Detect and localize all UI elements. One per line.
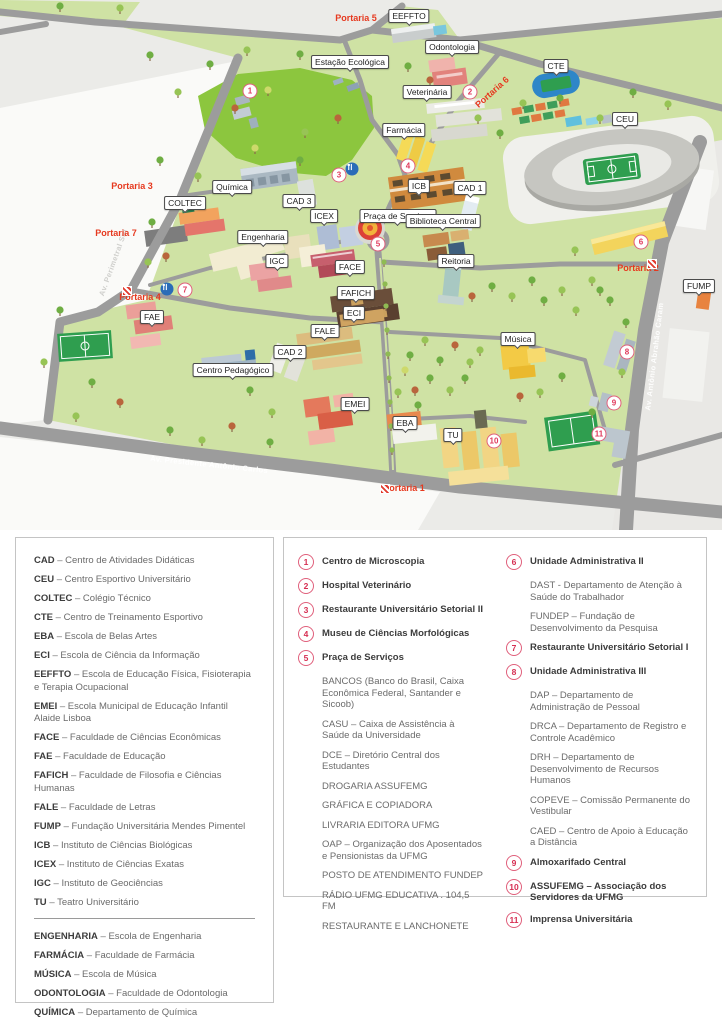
map-label-veterinaria: Veterinária bbox=[403, 85, 452, 99]
map-label-igc: IGC bbox=[265, 254, 288, 268]
legend-sub-item: RESTAURANTE E LANCHONETE bbox=[322, 921, 484, 933]
legend-sub-item: CASU – Caixa de Assistência à Saúde da U… bbox=[322, 719, 484, 742]
legend-sub-item: LIVRARIA EDITORA UFMG bbox=[322, 820, 484, 832]
portaria-label: Portaria 7 bbox=[95, 228, 137, 238]
map-label-face: FACE bbox=[335, 260, 365, 274]
legend-abbr-item: IGC – Instituto de Geociências bbox=[34, 878, 255, 891]
map-label-eba: EBA bbox=[392, 416, 417, 430]
map-label-centro-pedagogico: Centro Pedagógico bbox=[193, 363, 274, 377]
map-marker-2: 2 bbox=[463, 85, 478, 100]
map-label-farmacia: Farmácia bbox=[382, 123, 425, 137]
map-label-fale: FALE bbox=[311, 324, 340, 338]
map-marker-1: 1 bbox=[243, 84, 258, 99]
map-marker-8: 8 bbox=[620, 345, 635, 360]
legend-divider bbox=[34, 918, 255, 919]
legend-sub-item: BANCOS (Banco do Brasil, Caixa Econômica… bbox=[322, 676, 484, 711]
legend-sub-item: DRH – Departamento de Desenvolvimento de… bbox=[530, 752, 692, 787]
map-label-odontologia: Odontologia bbox=[425, 40, 479, 54]
legend-num-item: 6Unidade Administrativa II bbox=[506, 556, 692, 570]
legend-abbr-item: ENGENHARIA – Escola de Engenharia bbox=[34, 931, 255, 944]
map-label-emei: EMEI bbox=[341, 397, 370, 411]
map-label-ceu: CEU bbox=[612, 112, 638, 126]
legend-abbr-item: COLTEC – Colégio Técnico bbox=[34, 593, 255, 606]
legend-sub-item: DCE – Diretório Central dos Estudantes bbox=[322, 750, 484, 773]
map-label-icb: ICB bbox=[408, 179, 430, 193]
legend-num-item: 11Imprensa Universitária bbox=[506, 914, 692, 928]
map-label-engenharia: Engenharia bbox=[237, 230, 288, 244]
legend-abbr-item: FUMP – Fundação Universitária Mendes Pim… bbox=[34, 821, 255, 834]
legend-sub-item: DAST - Departamento de Atenção à Saúde d… bbox=[530, 580, 692, 603]
legend-abbr-item: ODONTOLOGIA – Faculdade de Odontologia bbox=[34, 988, 255, 1001]
map-label-icex: ICEX bbox=[310, 209, 338, 223]
legend-abbr-item: FAE – Faculdade de Educação bbox=[34, 751, 255, 764]
map-label-estacao-ecologica: Estação Ecológica bbox=[311, 55, 389, 69]
map-label-cad2: CAD 2 bbox=[273, 345, 306, 359]
legend-abbr-item: CTE – Centro de Treinamento Esportivo bbox=[34, 612, 255, 625]
legend-sub-item: COPEVE – Comissão Permanente do Vestibul… bbox=[530, 795, 692, 818]
map-label-musica: Música bbox=[501, 332, 536, 346]
legend-sub-item: RÁDIO UFMG EDUCATIVA . 104,5 FM bbox=[322, 890, 484, 913]
legend-num-item: 3Restaurante Universitário Setorial II bbox=[298, 604, 484, 618]
gate-icon bbox=[122, 286, 132, 296]
legend-numbered: 1Centro de Microscopia 2Hospital Veterin… bbox=[283, 537, 707, 897]
map-marker-6: 6 bbox=[634, 235, 649, 250]
legend-abbr-item: FACE – Faculdade de Ciências Econômicas bbox=[34, 732, 255, 745]
restaurant-icon bbox=[161, 283, 174, 296]
legend-sub-item: CAED – Centro de Apoio à Educação a Dist… bbox=[530, 826, 692, 849]
legend-abbr-item: ICB – Instituto de Ciências Biológicas bbox=[34, 840, 255, 853]
restaurant-icon bbox=[346, 163, 359, 176]
legend-abbr-item: EMEI – Escola Municipal de Educação Infa… bbox=[34, 701, 255, 726]
legend-numbered-col-2: 6Unidade Administrativa II DAST - Depart… bbox=[506, 556, 692, 940]
map-marker-7: 7 bbox=[178, 283, 193, 298]
legend-abbr-item: FARMÁCIA – Faculdade de Farmácia bbox=[34, 950, 255, 963]
legend-abbr-item: ECI – Escola de Ciência da Informação bbox=[34, 650, 255, 663]
legend-sub-item: DRCA – Departamento de Registro e Contro… bbox=[530, 721, 692, 744]
portaria-label: Portaria 5 bbox=[335, 13, 377, 23]
map-label-tu: TU bbox=[443, 428, 462, 442]
legend-abbr-item: FALE – Faculdade de Letras bbox=[34, 802, 255, 815]
legend-sub-item: POSTO DE ATENDIMENTO FUNDEP bbox=[322, 870, 484, 882]
legend-sub-item: GRÁFICA E COPIADORA bbox=[322, 800, 484, 812]
map-marker-9: 9 bbox=[607, 396, 622, 411]
map-label-fump: FUMP bbox=[683, 279, 715, 293]
map-label-eeffto: EEFFTO bbox=[388, 9, 429, 23]
legend-num-item: 5Praça de Serviços bbox=[298, 652, 484, 666]
legend-abbr-item: MÚSICA – Escola de Música bbox=[34, 969, 255, 982]
legend-num-item: 8Unidade Administrativa III bbox=[506, 666, 692, 680]
campus-map-page: Av. Perimetral Sul Av. Presidente Antôni… bbox=[0, 0, 722, 1024]
legend-num-item: 4Museu de Ciências Morfológicas bbox=[298, 628, 484, 642]
map-label-cad3: CAD 3 bbox=[282, 194, 315, 208]
map-label-fae: FAE bbox=[140, 310, 164, 324]
legend-abbr-item: CAD – Centro de Atividades Didáticas bbox=[34, 555, 255, 568]
legend-numbered-col-1: 1Centro de Microscopia 2Hospital Veterin… bbox=[298, 556, 484, 940]
gate-icon bbox=[647, 259, 657, 269]
legend-abbr-item: FAFICH – Faculdade de Filosofia e Ciênci… bbox=[34, 770, 255, 795]
legend-num-item: 10ASSUFEMG – Associação dos Servidores d… bbox=[506, 881, 692, 904]
legend-abbr-item: CEU – Centro Esportivo Universitário bbox=[34, 574, 255, 587]
legend-num-item: 9Almoxarifado Central bbox=[506, 857, 692, 871]
map-marker-3: 3 bbox=[332, 168, 347, 183]
legend-abbr-item: ICEX – Instituto de Ciências Exatas bbox=[34, 859, 255, 872]
map-marker-5: 5 bbox=[371, 237, 386, 252]
map-label-reitoria: Reitoria bbox=[437, 254, 474, 268]
legend-sub-item: OAP – Organização dos Aposentados e Pens… bbox=[322, 839, 484, 862]
map-marker-10: 10 bbox=[487, 434, 502, 449]
legend-num-item: 7Restaurante Universitário Setorial I bbox=[506, 642, 692, 656]
map-label-fafich: FAFICH bbox=[337, 286, 375, 300]
legend-num-item: 2Hospital Veterinário bbox=[298, 580, 484, 594]
gate-icon bbox=[380, 484, 390, 494]
map-label-quimica: Química bbox=[212, 180, 252, 194]
legend-abbreviations: CAD – Centro de Atividades Didáticas CEU… bbox=[15, 537, 274, 1003]
legend-abbr-item: EEFFTO – Escola de Educação Física, Fisi… bbox=[34, 669, 255, 694]
legend-sub-item: FUNDEP – Fundação de Desenvolvimento da … bbox=[530, 611, 692, 634]
legend-sub-item: DROGARIA ASSUFEMG bbox=[322, 781, 484, 793]
map-label-cte: CTE bbox=[544, 59, 569, 73]
map-label-coltec: COLTEC bbox=[164, 196, 206, 210]
campus-map: Av. Perimetral Sul Av. Presidente Antôni… bbox=[0, 0, 722, 530]
map-marker-11: 11 bbox=[592, 427, 607, 442]
portaria-label: Portaria 3 bbox=[111, 181, 153, 191]
map-label-biblioteca-central: Biblioteca Central bbox=[406, 214, 481, 228]
legend-abbr-item: EBA – Escola de Belas Artes bbox=[34, 631, 255, 644]
legend-num-item: 1Centro de Microscopia bbox=[298, 556, 484, 570]
map-label-eci: ECI bbox=[343, 306, 365, 320]
map-label-cad1: CAD 1 bbox=[453, 181, 486, 195]
legend-sub-item: DAP – Departamento de Administração de P… bbox=[530, 690, 692, 713]
map-marker-4: 4 bbox=[401, 159, 416, 174]
legend-abbr-item: TU – Teatro Universitário bbox=[34, 897, 255, 910]
legend-abbr-item: QUÍMICA – Departamento de Química bbox=[34, 1007, 255, 1020]
